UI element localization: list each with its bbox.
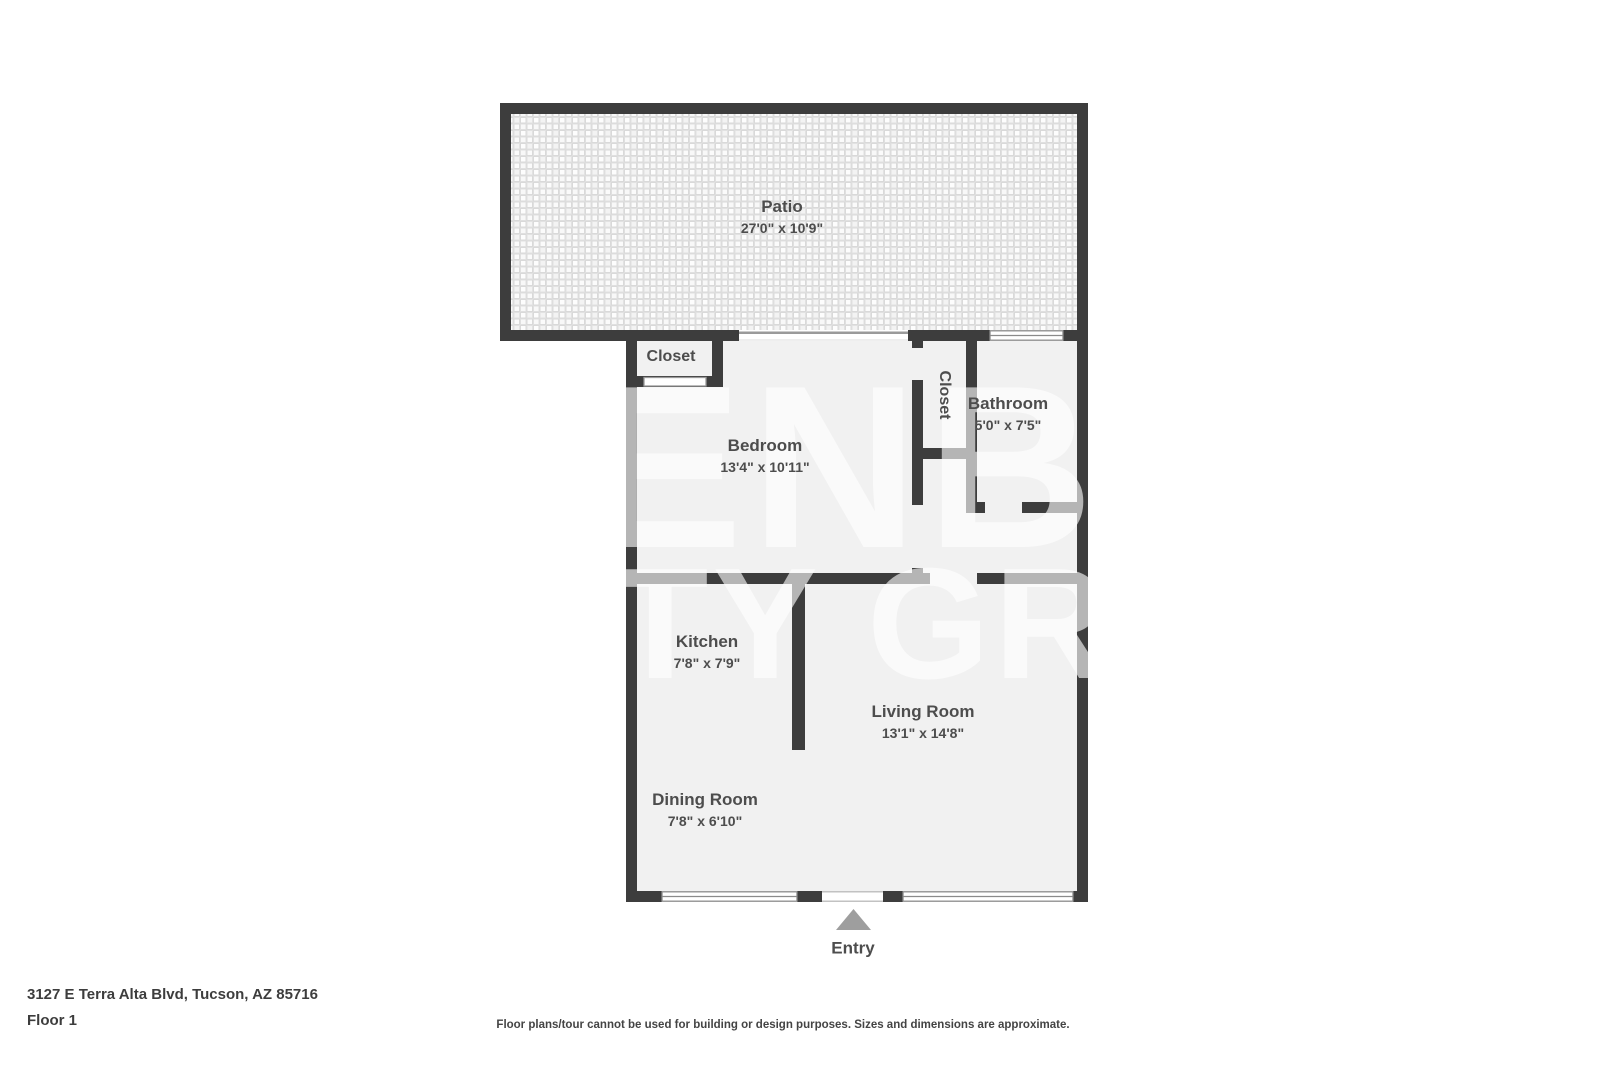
patio-wall-bottom-right xyxy=(1063,330,1088,341)
bedroom-closet-name: Closet xyxy=(647,346,696,368)
kitchen-divider-wall xyxy=(792,584,805,750)
living-window xyxy=(903,892,1073,901)
bedroom-wall-right-b xyxy=(912,380,923,505)
hall-closet-name: Closet xyxy=(933,371,955,420)
bathroom-dims: 5'0" x 7'5" xyxy=(968,416,1048,435)
dining-window xyxy=(662,892,797,901)
property-address: 3127 E Terra Alta Blvd, Tucson, AZ 85716 xyxy=(27,986,318,1003)
dining-room-dims: 7'8" x 6'10" xyxy=(652,812,758,831)
entry-opening xyxy=(822,891,883,902)
hall-closet-label: Closet xyxy=(933,371,955,420)
unit-wall-bottom-se xyxy=(1073,891,1088,902)
mid-wall-left xyxy=(626,573,930,584)
patio-wall-top xyxy=(500,103,1088,114)
patio-sliding-door xyxy=(739,330,908,341)
floor-number-label: Floor 1 xyxy=(27,1012,77,1029)
kitchen-name: Kitchen xyxy=(674,631,741,654)
bedroom-dims: 13'4" x 10'11" xyxy=(720,458,809,477)
kitchen-dims: 7'8" x 7'9" xyxy=(674,654,741,673)
patio-wall-bottom-left xyxy=(500,330,739,341)
patio-wall-left xyxy=(500,103,511,341)
bedroom-closet-door xyxy=(644,378,706,387)
dining-room-label: Dining Room 7'8" x 6'10" xyxy=(652,789,758,831)
unit-wall-bottom-2 xyxy=(883,891,903,902)
living-room-dims: 13'1" x 14'8" xyxy=(872,724,975,743)
floor-plan-page: ENBA TY GRO Patio 27'0" x 10'9" Closet B… xyxy=(0,0,1600,1067)
bedroom-wall-right-a xyxy=(912,341,923,348)
unit-wall-left xyxy=(626,341,637,902)
living-room-name: Living Room xyxy=(872,701,975,724)
entry-label: Entry xyxy=(831,938,874,961)
entry-name: Entry xyxy=(831,938,874,961)
patio-label: Patio 27'0" x 10'9" xyxy=(741,196,823,238)
entry-arrow-icon xyxy=(836,909,871,930)
bathroom-wall-bottom-a xyxy=(966,502,985,513)
kitchen-label: Kitchen 7'8" x 7'9" xyxy=(674,631,741,673)
patio-name: Patio xyxy=(741,196,823,219)
disclaimer-text: Floor plans/tour cannot be used for buil… xyxy=(496,1019,1069,1031)
dining-room-name: Dining Room xyxy=(652,789,758,812)
floor-plan-drawing xyxy=(0,0,1600,1067)
bathroom-name: Bathroom xyxy=(968,393,1048,416)
unit-wall-bottom-1 xyxy=(797,891,822,902)
bathroom-label: Bathroom 5'0" x 7'5" xyxy=(968,393,1048,435)
bedroom-label: Bedroom 13'4" x 10'11" xyxy=(720,435,809,477)
bathroom-window xyxy=(990,331,1063,340)
patio-wall-bottom-mid xyxy=(908,330,990,341)
unit-wall-right xyxy=(1077,341,1088,902)
hall-closet-wall-bottom xyxy=(912,448,977,459)
bathroom-wall-bottom-b xyxy=(1022,502,1077,513)
patio-dims: 27'0" x 10'9" xyxy=(741,219,823,238)
bedroom-closet-label: Closet xyxy=(647,346,696,368)
bedroom-name: Bedroom xyxy=(720,435,809,458)
unit-wall-bottom-sw xyxy=(626,891,662,902)
patio-wall-right xyxy=(1077,103,1088,341)
living-room-label: Living Room 13'1" x 14'8" xyxy=(872,701,975,743)
mid-wall-right xyxy=(977,573,1077,584)
